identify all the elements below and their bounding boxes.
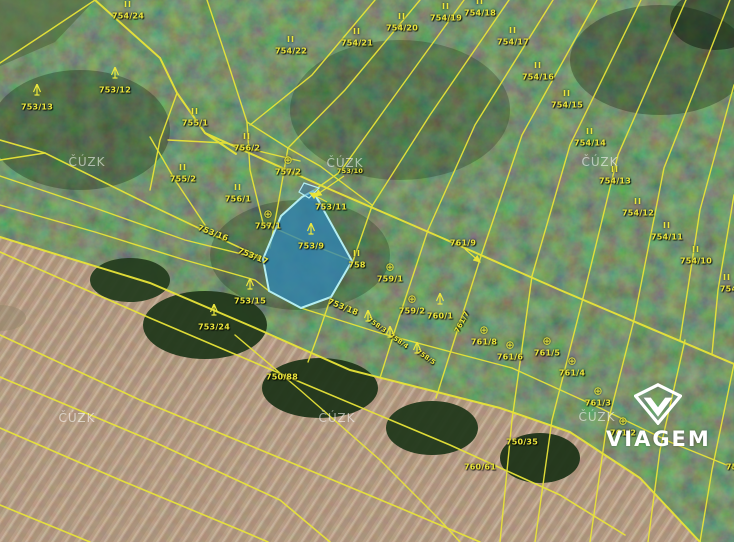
forest-symbol: II: [287, 36, 295, 44]
forest-symbol: II: [723, 274, 731, 282]
parcel-label: 754/19: [430, 14, 462, 23]
parcel-label: 754/24: [112, 12, 144, 21]
parcel-label: 760/1: [427, 312, 453, 321]
parcel-label: 757/2: [275, 168, 301, 177]
orchard-symbol: ⊕: [567, 356, 576, 367]
forest-symbol: II: [243, 133, 251, 141]
parcel-label: 761/9: [450, 239, 476, 248]
orchard-symbol: ⊕: [283, 155, 292, 166]
parcel-label: 753/24: [198, 323, 230, 332]
forest-symbol: II: [191, 108, 199, 116]
parcel-label: 754/22: [275, 47, 307, 56]
parcel-label: 753/15: [234, 297, 266, 306]
parcel-label: 759/2: [399, 307, 425, 316]
parcel-label: 755/2: [170, 175, 196, 184]
conifer-symbol: [412, 342, 423, 358]
forest-symbol: II: [692, 246, 700, 254]
parcel-label: 750/88: [266, 373, 298, 382]
parcel-label: 754/10: [680, 257, 712, 266]
conifer-symbol: [245, 278, 256, 294]
forest-symbol: II: [398, 13, 406, 21]
forest-symbol: II: [563, 90, 571, 98]
parcel-label: 761/8: [471, 338, 497, 347]
parcel-label: 753/2: [726, 463, 734, 472]
parcel-label: 758: [348, 261, 365, 270]
forest-symbol: II: [353, 250, 361, 258]
parcel-label: 756/2: [234, 144, 260, 153]
parcel-label: 754/16: [522, 73, 554, 82]
parcel-label: 756/1: [225, 195, 251, 204]
forest-symbol: II: [534, 62, 542, 70]
cuzk-watermark: ČÚZK: [68, 155, 105, 169]
cadastral-map-view: 754/24II753/12753/13754/22II754/21II754/…: [0, 0, 734, 542]
conifer-symbol: [385, 326, 396, 342]
parcel-label: 753/11: [315, 203, 347, 212]
orchard-symbol: ⊕: [593, 386, 602, 397]
orchard-symbol: ⊕: [479, 325, 488, 336]
orchard-symbol: ⊕: [385, 262, 394, 273]
conifer-symbol: [435, 293, 446, 309]
parcel-label: 754/21: [341, 39, 373, 48]
parcel-label: 759/1: [377, 275, 403, 284]
orchard-symbol: ⊕: [407, 294, 416, 305]
conifer-symbol: [363, 310, 374, 326]
orchard-symbol: ⊕: [263, 209, 272, 220]
conifer-symbol: [306, 223, 317, 239]
parcel-label: 754/13: [599, 177, 631, 186]
parcel-label: 753/12: [99, 86, 131, 95]
forest-symbol: II: [124, 1, 132, 9]
parcel-label: 754/17: [497, 38, 529, 47]
parcel-label: 750/35: [506, 438, 538, 447]
cuzk-watermark: ČÚZK: [318, 411, 355, 425]
parcel-label: 754/15: [551, 101, 583, 110]
cuzk-watermark: ČÚZK: [581, 155, 618, 169]
cuzk-watermark: ČÚZK: [58, 411, 95, 425]
parcel-label: 754/11: [651, 233, 683, 242]
orchard-symbol: ⊕: [505, 340, 514, 351]
parcel-label: 761/5: [534, 349, 560, 358]
forest-symbol: II: [663, 222, 671, 230]
parcel-label: 754/20: [386, 24, 418, 33]
forest-symbol: II: [234, 184, 242, 192]
forest-symbol: II: [634, 198, 642, 206]
parcel-label: 753/13: [21, 103, 53, 112]
parcel-label: 754/12: [622, 209, 654, 218]
parcel-label: 754/9: [720, 285, 734, 294]
forest-symbol: II: [476, 0, 484, 6]
forest-symbol: II: [179, 164, 187, 172]
forest-symbol: II: [586, 128, 594, 136]
conifer-symbol: [32, 84, 43, 100]
viagem-logo-mark: [634, 383, 682, 425]
parcel-label: 757/1: [255, 222, 281, 231]
conifer-symbol: [209, 304, 220, 320]
parcel-label: 760/61: [464, 463, 496, 472]
viagem-logo-text: VIAGEM: [606, 427, 710, 451]
forest-symbol: II: [353, 28, 361, 36]
parcel-label: 761/6: [497, 353, 523, 362]
parcel-label: 754/18: [464, 9, 496, 18]
orchard-symbol: ⊕: [542, 336, 551, 347]
parcel-label: 761/4: [559, 369, 585, 378]
cuzk-watermark: ČÚZK: [326, 156, 363, 170]
parcel-label: 754/14: [574, 139, 606, 148]
parcel-label: 753/9: [298, 242, 324, 251]
forest-symbol: II: [509, 27, 517, 35]
parcel-label: 755/1: [182, 119, 208, 128]
viagem-logo: VIAGEM: [606, 383, 710, 451]
conifer-symbol: [110, 67, 121, 83]
forest-symbol: II: [442, 3, 450, 11]
